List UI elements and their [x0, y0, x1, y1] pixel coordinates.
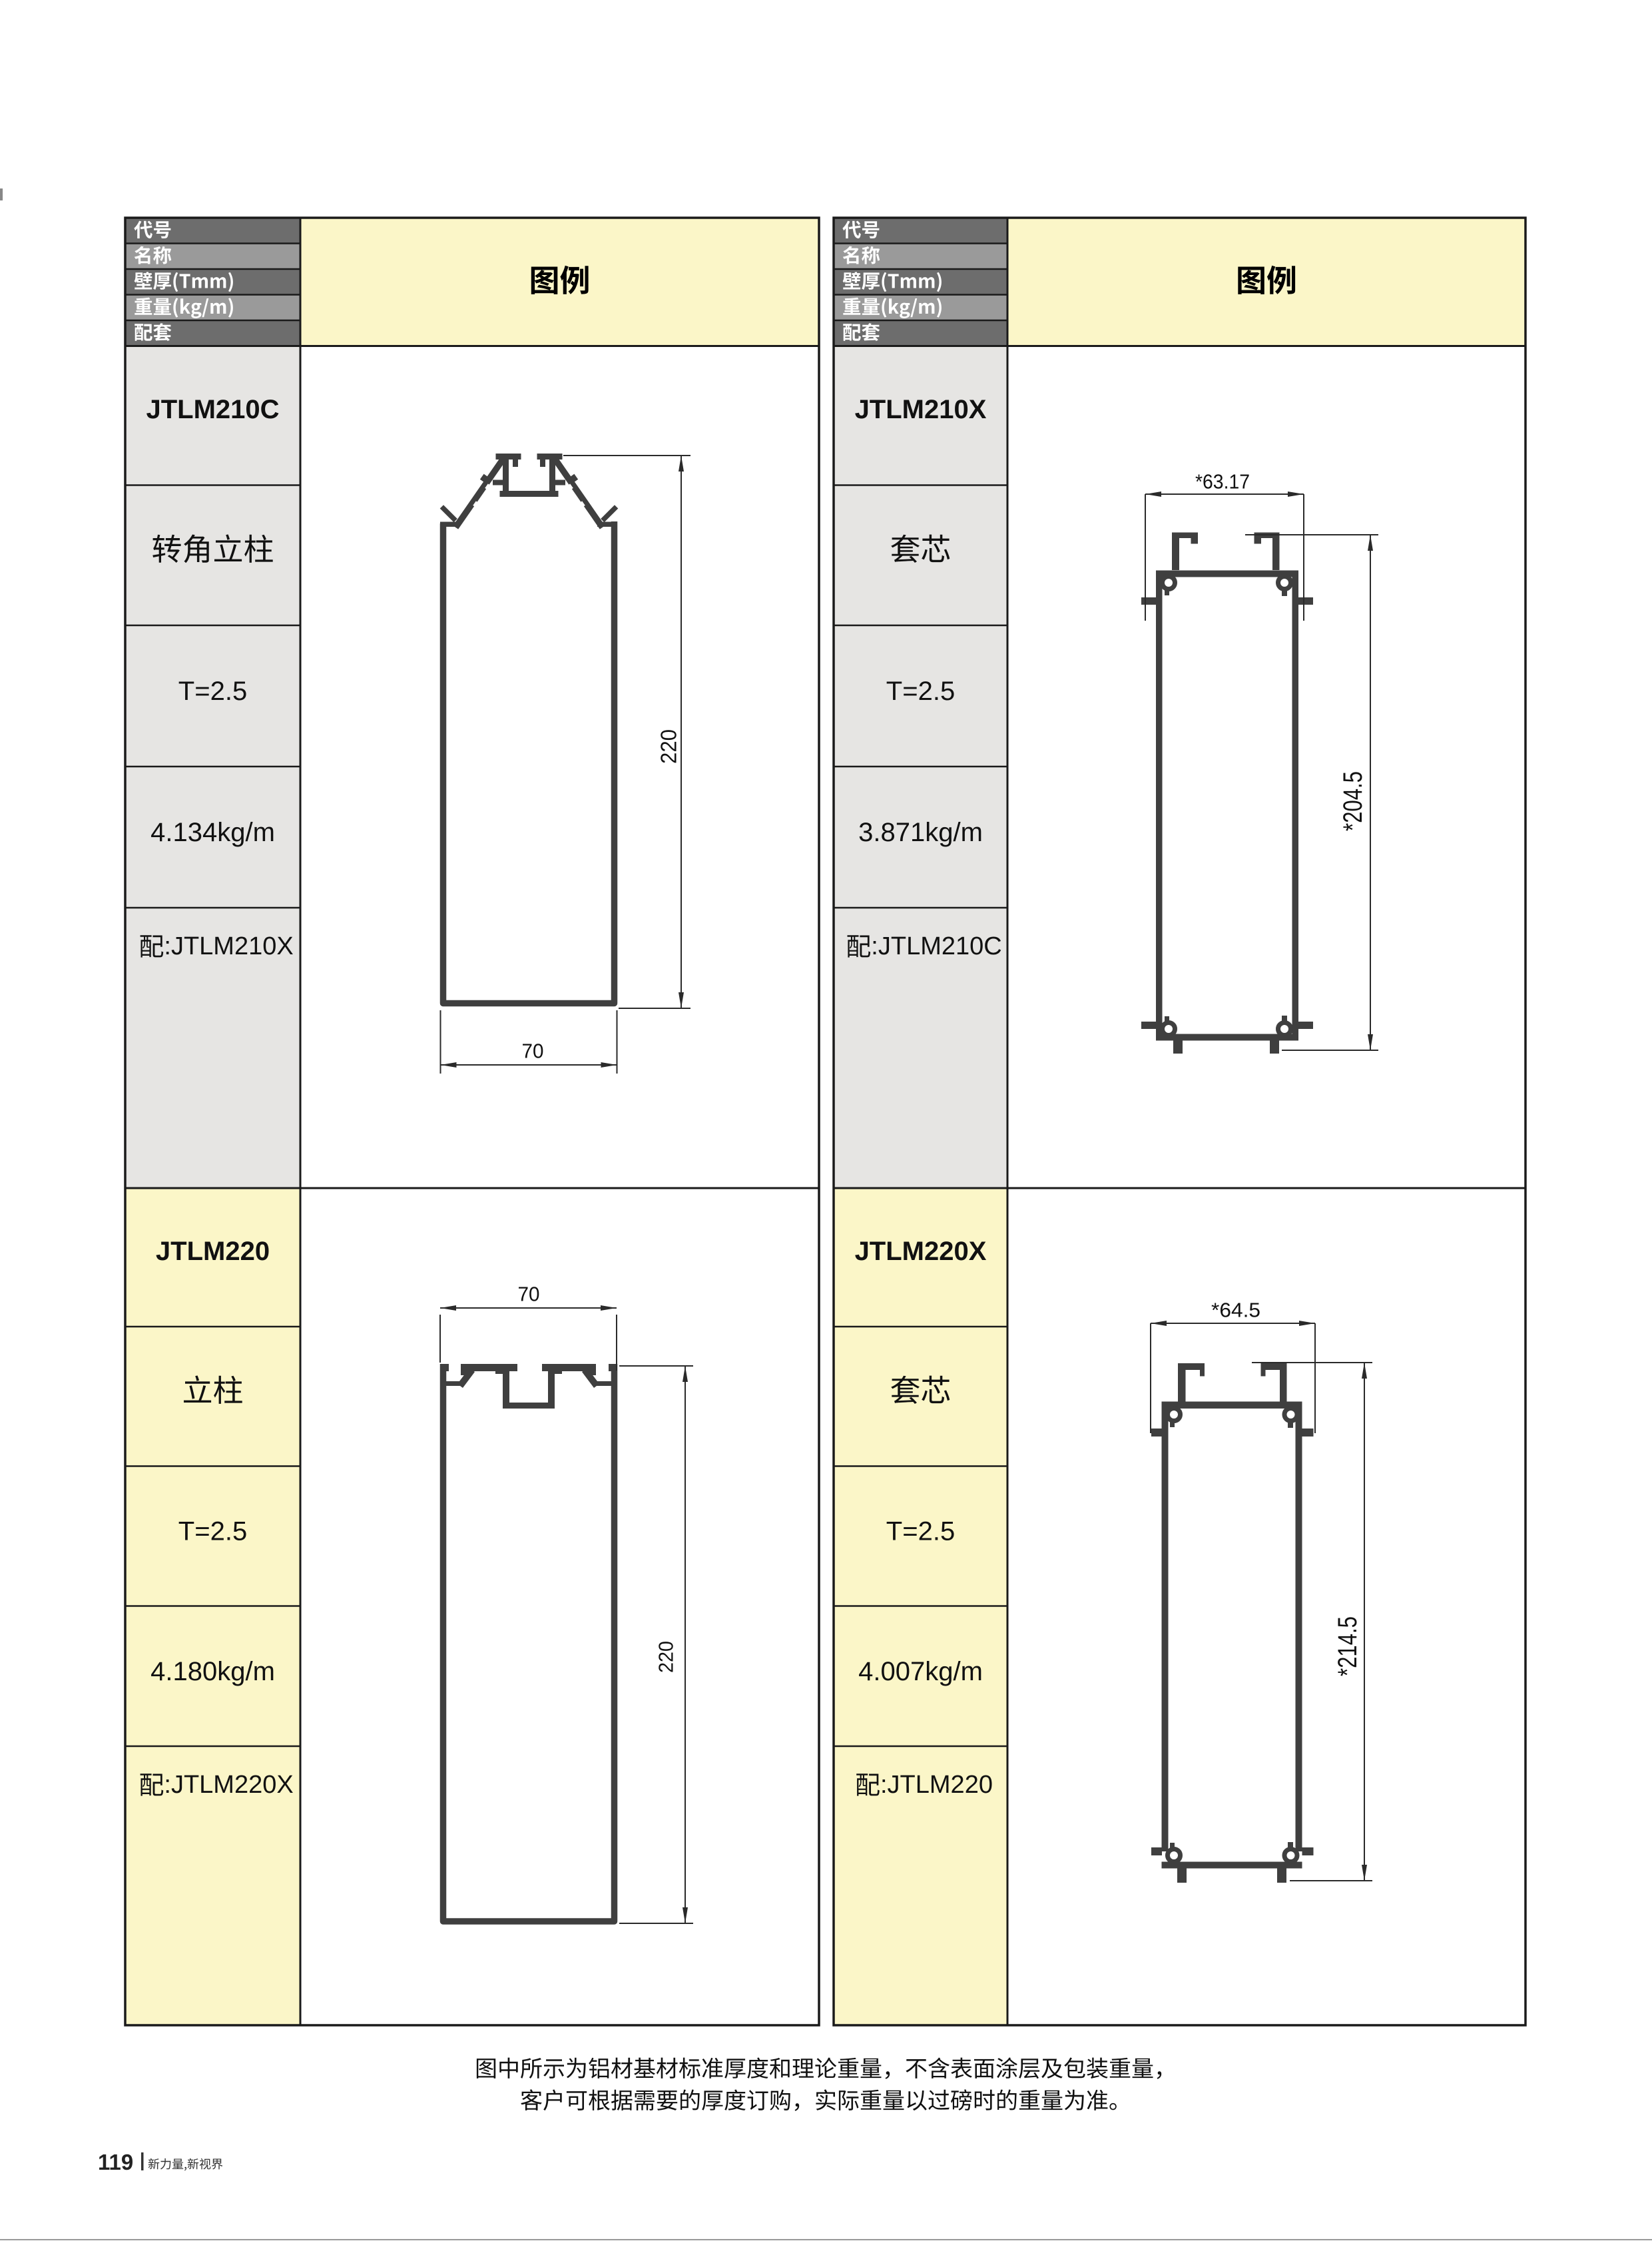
svg-text:3.871kg/m: 3.871kg/m: [858, 818, 983, 847]
svg-text:119: 119: [98, 2150, 133, 2174]
svg-text:4.007kg/m: 4.007kg/m: [858, 1657, 983, 1686]
svg-text:70: 70: [522, 1040, 544, 1063]
svg-text:220: 220: [657, 729, 681, 764]
svg-text:JTLM220X: JTLM220X: [855, 1237, 987, 1266]
svg-text:T=2.5: T=2.5: [178, 677, 247, 706]
svg-text:T=2.5: T=2.5: [886, 1517, 955, 1546]
svg-text:JTLM210X: JTLM210X: [855, 395, 987, 424]
svg-text:4.180kg/m: 4.180kg/m: [150, 1657, 275, 1686]
svg-text:4.134kg/m: 4.134kg/m: [150, 818, 275, 847]
svg-text::JTLM210X: :JTLM210X: [164, 932, 293, 960]
svg-text:JTLM210C: JTLM210C: [146, 395, 279, 424]
svg-text:T=2.5: T=2.5: [178, 1517, 247, 1546]
svg-text::JTLM210C: :JTLM210C: [871, 932, 1001, 960]
svg-text:*204.5: *204.5: [1338, 771, 1368, 831]
svg-text:T=2.5: T=2.5: [886, 677, 955, 706]
svg-text::JTLM220: :JTLM220: [880, 1771, 993, 1799]
svg-text::JTLM220X: :JTLM220X: [164, 1771, 293, 1799]
svg-text:70: 70: [518, 1283, 540, 1306]
svg-text:*63.17: *63.17: [1195, 470, 1250, 493]
svg-text:220: 220: [655, 1641, 678, 1673]
svg-text:*214.5: *214.5: [1333, 1616, 1362, 1676]
svg-text:JTLM220: JTLM220: [156, 1237, 270, 1266]
svg-text:*64.5: *64.5: [1211, 1299, 1260, 1322]
